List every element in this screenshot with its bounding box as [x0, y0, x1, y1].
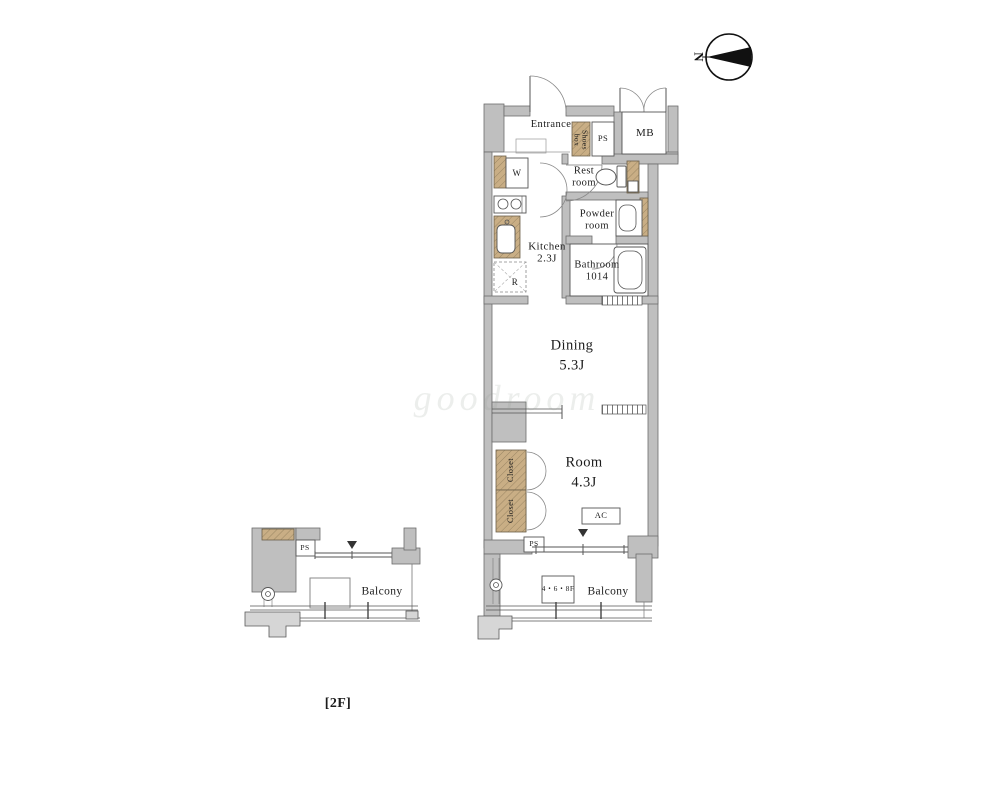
- label-dining: Dining 5.3J: [551, 336, 594, 375]
- label-balcony-main: Balcony: [587, 586, 628, 599]
- label-ac: AC: [595, 511, 608, 521]
- label-balcony-floors: 4・6・8F: [542, 585, 575, 593]
- left-wing: [245, 528, 420, 637]
- label-entrance: Entrance: [531, 119, 572, 131]
- label-ps-entry: PS: [598, 134, 608, 144]
- label-floor-note: [2F]: [325, 696, 351, 712]
- watermark: goodroom: [414, 377, 601, 419]
- label-washer: W: [513, 168, 522, 178]
- sink-icon: [497, 225, 515, 253]
- label-ps-left-wing: PS: [300, 544, 309, 552]
- label-balcony-left-wing: Balcony: [361, 586, 402, 599]
- compass-north-label: N: [691, 52, 706, 62]
- toilet-bowl-icon: [596, 169, 616, 185]
- drain-icon: [490, 579, 502, 591]
- window-marker-triangle: [347, 541, 357, 549]
- label-meter-box: MB: [636, 127, 654, 139]
- label-rest-room: Rest room: [572, 165, 596, 189]
- label-refrigerator: R: [511, 277, 519, 287]
- label-kitchen: Kitchen 2.3J: [528, 241, 566, 266]
- label-closet-lower: Closet: [506, 499, 516, 523]
- drain-icon: [262, 588, 275, 601]
- label-closet-upper: Closet: [506, 458, 516, 482]
- window-marker-triangle: [578, 529, 588, 537]
- label-bathroom: Bathroom 1014: [574, 259, 619, 283]
- label-powder-room: Powder room: [580, 208, 614, 232]
- floorplan-canvas: Entrance Shoes box PS MB W Rest room Pow…: [0, 0, 999, 801]
- label-shoes-box: Shoes box: [574, 130, 589, 150]
- label-ps-room: PS: [529, 540, 538, 548]
- compass-icon: [702, 34, 752, 80]
- toilet-icon: [617, 166, 626, 187]
- label-room: Room 4.3J: [565, 453, 602, 492]
